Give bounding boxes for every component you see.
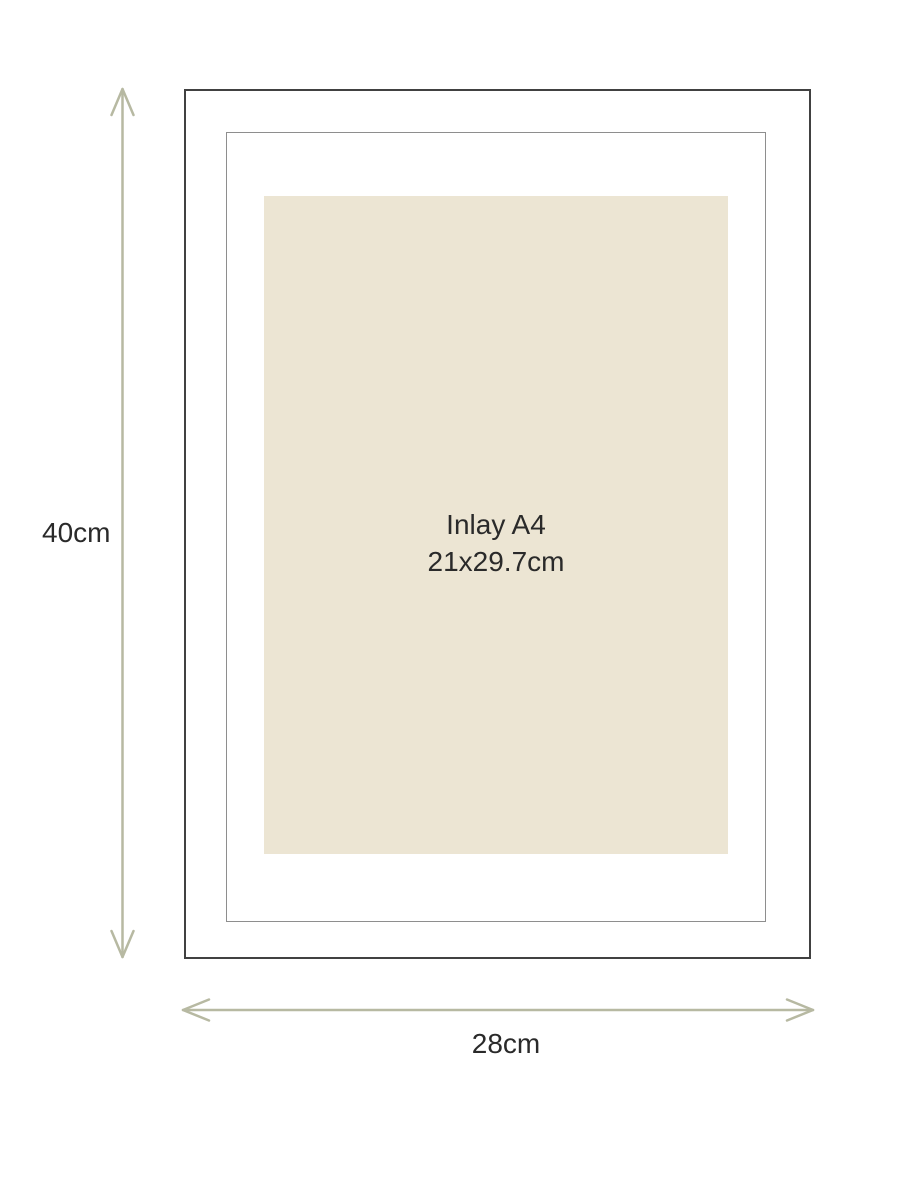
inlay-size-label: 21x29.7cm: [428, 543, 565, 580]
frame-outer-rect: Inlay A4 21x29.7cm: [184, 89, 811, 959]
inlay-area: Inlay A4 21x29.7cm: [264, 196, 728, 854]
height-label: 40cm: [42, 517, 110, 549]
width-label: 28cm: [441, 1028, 571, 1060]
frame-mat-rect: Inlay A4 21x29.7cm: [226, 132, 766, 922]
frame-dimension-diagram: Inlay A4 21x29.7cm 40cm 28cm: [0, 0, 900, 1200]
width-dimension-arrow: [176, 992, 820, 1028]
inlay-title: Inlay A4: [428, 506, 565, 543]
inlay-text-block: Inlay A4 21x29.7cm: [428, 506, 565, 580]
